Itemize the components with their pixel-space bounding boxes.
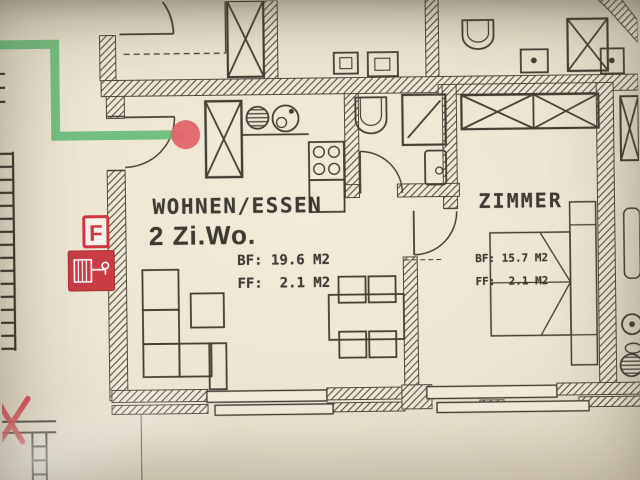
fire-hose-reel-icon: [68, 251, 114, 292]
bedroom-bf-area: BF: 15.7 M2: [475, 251, 548, 265]
sofa-seat: [179, 343, 211, 376]
bedroom-door: [404, 208, 459, 260]
bedroom-furniture: [461, 94, 601, 367]
bath-door-leaf: [360, 152, 361, 194]
room-label-bedroom: ZIMMER: [478, 188, 563, 213]
floor-plan: F WOHNEN/ESSEN 2 Zi.Wo. BF: 19.6 M2 FF: …: [0, 0, 640, 480]
coffee-table-icon: [191, 293, 224, 327]
door-arc: [121, 0, 174, 34]
upper-apartment-fragment: [119, 0, 624, 79]
dining-set: [328, 276, 404, 358]
bedroom-door-arc: [414, 211, 458, 255]
living-room-furniture: [142, 269, 226, 390]
bath-door-arc: [360, 151, 403, 194]
entrance-door-arc: [124, 117, 175, 168]
bedroom-ff-area: FF: 2.1 M2: [475, 274, 548, 288]
chair-icon: [338, 276, 365, 302]
unit-type-label: 2 Zi.Wo.: [149, 220, 257, 252]
chair-icon: [369, 331, 396, 357]
staircase-steps: [0, 74, 15, 351]
neighbor-fixtures: [617, 96, 640, 376]
stove-icon: [309, 142, 344, 180]
location-dot-icon: [171, 120, 200, 149]
chair-icon: [368, 276, 395, 302]
sink-drainer-icon: [246, 107, 268, 129]
chair-icon: [339, 331, 366, 357]
sink-basin-icon: [272, 105, 298, 131]
living-bf-area: BF: 19.6 M2: [237, 252, 330, 269]
sofa-seat: [143, 344, 179, 377]
bathroom-fixtures: [355, 94, 446, 193]
sofa-seat: [142, 270, 178, 310]
floor-plan-photo: F WOHNEN/ESSEN 2 Zi.Wo. BF: 19.6 M2 FF: …: [0, 0, 640, 480]
wardrobe-icon: [461, 94, 598, 130]
living-ff-area: FF: 2.1 M2: [237, 275, 330, 292]
room-label-living: WOHNEN/ESSEN: [152, 193, 322, 219]
fire-point-symbol: F: [84, 217, 108, 247]
entrance-door: [106, 116, 175, 171]
floor-plan-drawing: F: [0, 0, 640, 480]
side-cabinet: [570, 202, 598, 365]
sofa-seat: [143, 310, 179, 344]
fire-point-letter: F: [89, 221, 103, 246]
